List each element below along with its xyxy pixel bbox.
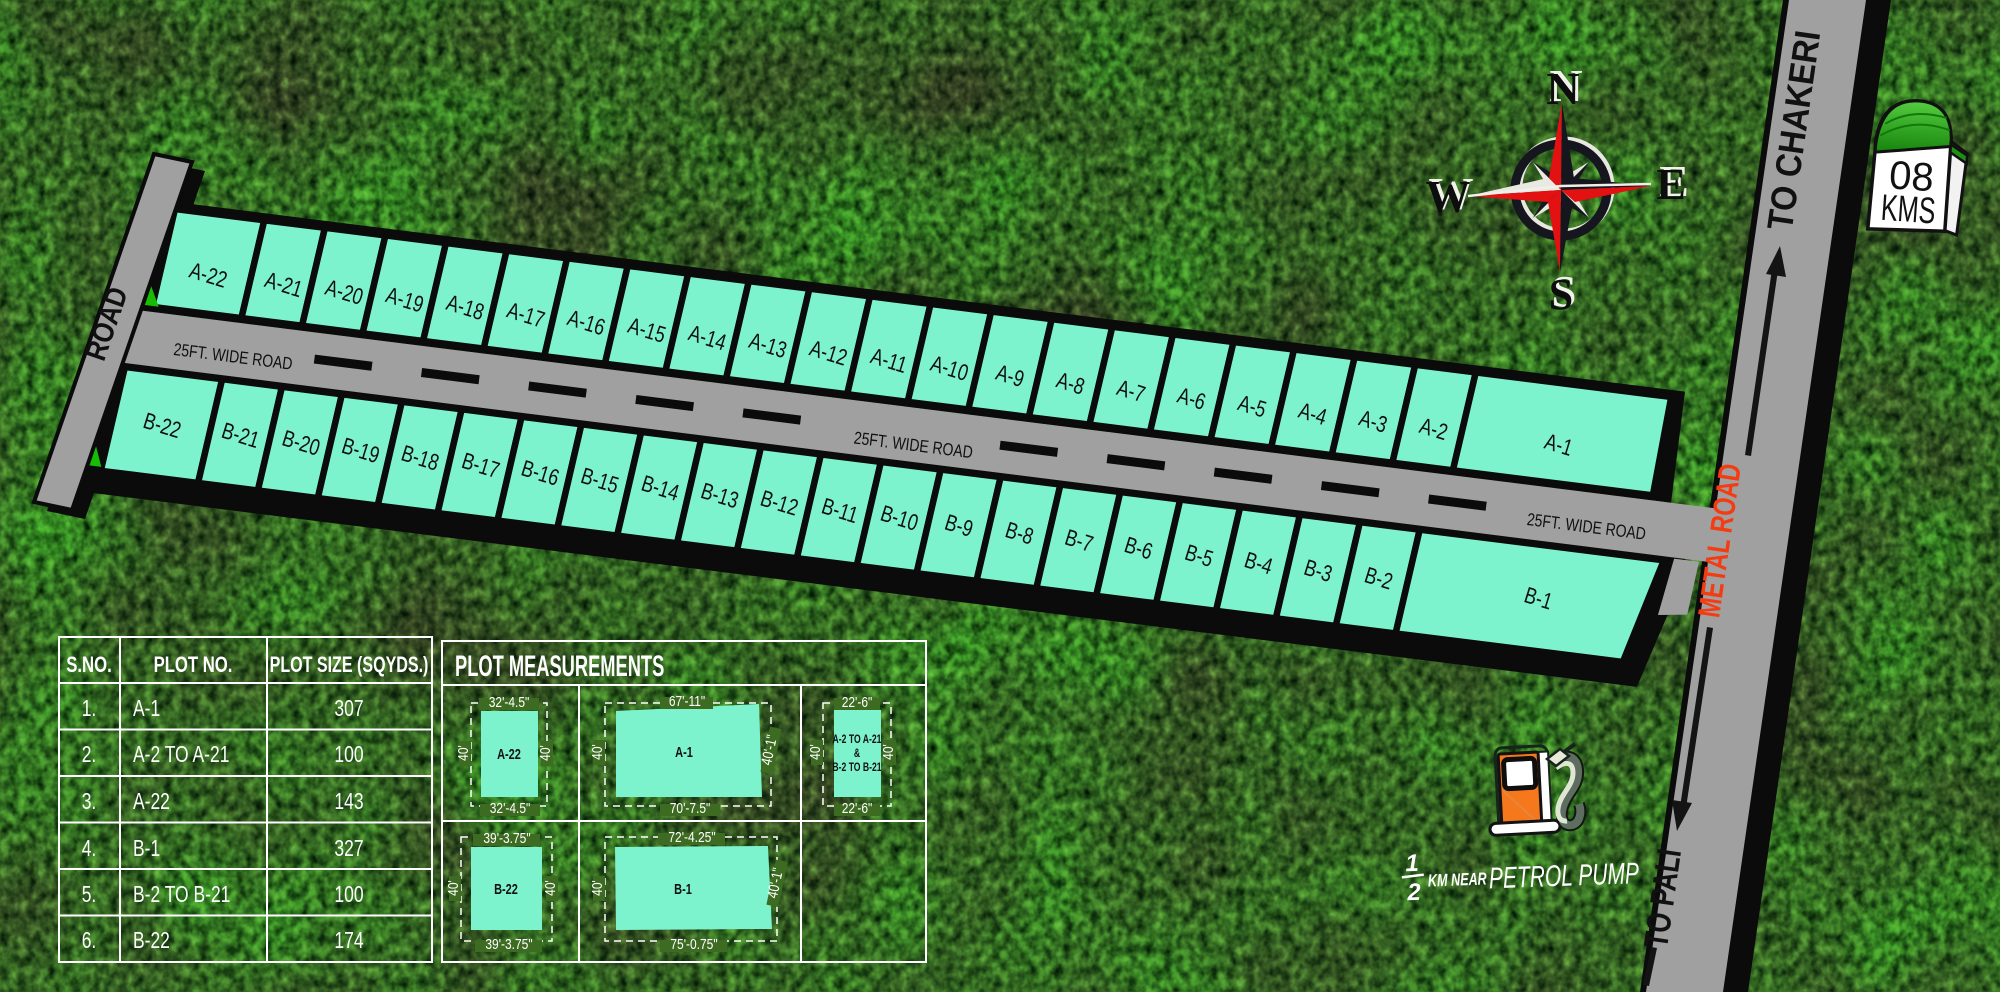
svg-text:40': 40' xyxy=(455,745,472,761)
svg-text:5.: 5. xyxy=(82,883,97,908)
svg-text:143: 143 xyxy=(334,790,363,815)
svg-text:W: W xyxy=(1426,172,1471,222)
svg-text:40': 40' xyxy=(880,744,897,760)
svg-text:PLOT MEASUREMENTS: PLOT MEASUREMENTS xyxy=(455,651,664,684)
svg-text:&: & xyxy=(854,748,861,761)
svg-text:75'-0.75": 75'-0.75" xyxy=(670,936,717,953)
svg-text:PLOT NO.: PLOT NO. xyxy=(154,653,233,678)
svg-text:327: 327 xyxy=(334,837,363,862)
svg-text:174: 174 xyxy=(334,929,363,954)
svg-text:A-1: A-1 xyxy=(133,697,160,722)
svg-text:67'-11": 67'-11" xyxy=(669,693,705,710)
svg-text:40': 40' xyxy=(589,744,606,760)
svg-text:2.: 2. xyxy=(82,743,97,768)
svg-text:40': 40' xyxy=(807,744,824,760)
svg-text:B-1: B-1 xyxy=(674,880,692,897)
svg-text:1: 1 xyxy=(1405,850,1419,877)
svg-text:2: 2 xyxy=(1406,879,1422,907)
svg-text:40': 40' xyxy=(445,880,462,896)
svg-text:32'-4.5": 32'-4.5" xyxy=(490,800,531,817)
svg-text:E: E xyxy=(1656,160,1685,209)
svg-text:A-2 TO A-21: A-2 TO A-21 xyxy=(133,743,229,768)
svg-text:100: 100 xyxy=(334,883,363,908)
svg-text:B-2 TO B-21: B-2 TO B-21 xyxy=(832,762,881,775)
svg-text:4.: 4. xyxy=(82,837,97,862)
svg-text:PLOT SIZE (SQYDS.): PLOT SIZE (SQYDS.) xyxy=(270,654,429,678)
svg-text:100: 100 xyxy=(334,743,363,768)
svg-text:A-22: A-22 xyxy=(133,790,170,815)
svg-text:A-1: A-1 xyxy=(675,743,693,760)
svg-text:S: S xyxy=(1549,270,1573,319)
svg-text:S.NO.: S.NO. xyxy=(66,653,111,678)
svg-text:B-1: B-1 xyxy=(133,837,160,862)
svg-text:KM NEAR: KM NEAR xyxy=(1428,870,1487,892)
svg-text:39'-3.75": 39'-3.75" xyxy=(483,830,530,847)
svg-text:KMS: KMS xyxy=(1880,186,1937,232)
svg-text:70'-7.5": 70'-7.5" xyxy=(670,800,711,817)
svg-text:40': 40' xyxy=(542,880,559,896)
svg-text:40': 40' xyxy=(537,745,554,761)
svg-text:B-22: B-22 xyxy=(494,880,518,897)
svg-text:40': 40' xyxy=(589,880,606,896)
svg-text:6.: 6. xyxy=(82,929,97,954)
svg-text:1.: 1. xyxy=(82,697,97,722)
svg-text:22'-6": 22'-6" xyxy=(842,694,873,711)
svg-text:39'-3.75": 39'-3.75" xyxy=(485,936,532,953)
svg-text:307: 307 xyxy=(334,697,363,722)
svg-text:32'-4.5": 32'-4.5" xyxy=(489,694,530,711)
svg-text:B-2 TO B-21: B-2 TO B-21 xyxy=(133,883,230,908)
svg-text:A-22: A-22 xyxy=(497,745,521,762)
svg-text:B-22: B-22 xyxy=(133,929,170,954)
svg-text:PETROL PUMP: PETROL PUMP xyxy=(1488,858,1640,896)
svg-text:A-2 TO A-21: A-2 TO A-21 xyxy=(833,734,882,747)
svg-text:22'-6": 22'-6" xyxy=(842,800,873,817)
svg-text:3.: 3. xyxy=(82,790,97,815)
svg-text:72'-4.25": 72'-4.25" xyxy=(668,829,715,846)
svg-text:N: N xyxy=(1546,63,1579,114)
